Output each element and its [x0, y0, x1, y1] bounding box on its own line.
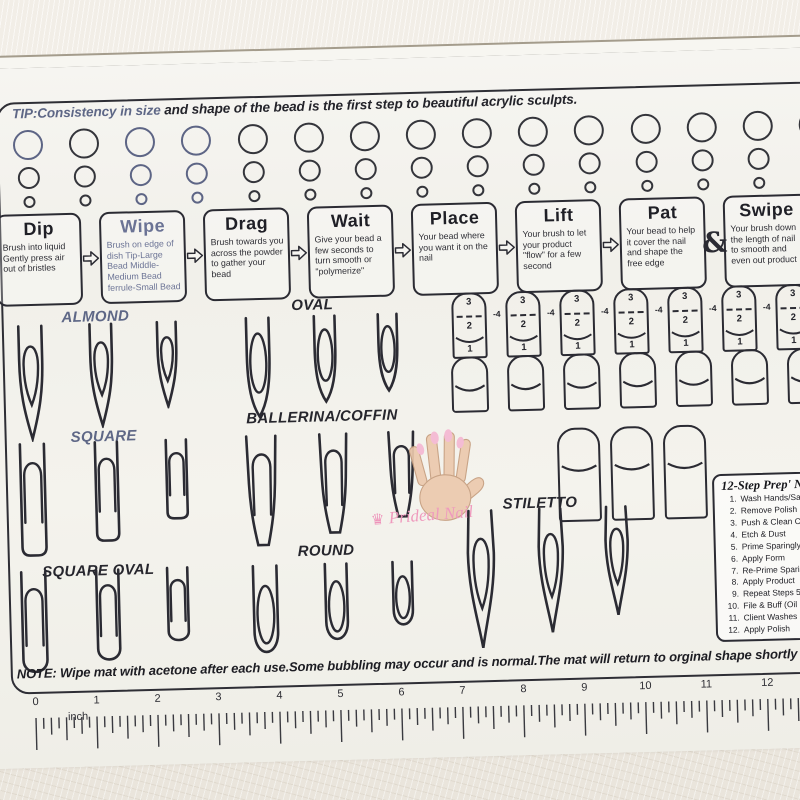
prep-item-number: 8.	[724, 577, 739, 589]
guide-smile-line	[565, 380, 598, 399]
arrow-right-icon	[497, 201, 517, 293]
brand-logo: ♛ Prideal Nail	[394, 419, 517, 527]
stiletto-nail-outline	[593, 504, 642, 617]
step-title: Dip	[2, 218, 76, 241]
arrow-right-icon	[186, 244, 205, 266]
guide-marker-4: -4	[655, 304, 663, 314]
prep-item-number: 3.	[722, 517, 737, 529]
plain-nail-guides-row	[451, 347, 800, 413]
small-bead-circle	[416, 186, 428, 198]
arrow-right-icon	[82, 247, 101, 269]
shape-group-stiletto	[453, 504, 643, 651]
almond-nail-outline	[78, 322, 126, 429]
plain-nail-guide	[507, 355, 545, 412]
coffin-nail-outline	[235, 433, 290, 558]
small-bead-circle	[79, 194, 91, 206]
ruler-number: 9	[581, 682, 587, 694]
guide-zone-2: 2	[616, 316, 647, 328]
bead-column	[574, 115, 606, 194]
guide-zone-1: 1	[670, 337, 701, 349]
guide-smile-line	[666, 460, 705, 479]
prep-item-number: 9.	[724, 589, 739, 601]
plain-nail-guide	[563, 353, 601, 410]
guide-zone-1: 1	[454, 343, 485, 355]
medium-bead-circle	[747, 148, 770, 171]
ruler-number: 8	[520, 683, 526, 695]
small-bead-circle	[585, 181, 597, 193]
guide-marker-4: -4	[547, 307, 555, 317]
prep-item-text: Client Washes Hands	[743, 611, 800, 625]
step-title: Wipe	[106, 215, 180, 238]
prep-item-number: 11.	[725, 613, 740, 625]
numbered-nail-guide: 3-421	[505, 291, 542, 358]
shape-group-almond	[6, 320, 189, 443]
numbered-nail-guide: 3-421	[613, 288, 650, 355]
small-bead-circle	[360, 187, 372, 199]
almond-nail-outline	[6, 323, 57, 442]
guide-dashed-line	[511, 314, 536, 317]
guide-zone-3: 3	[723, 289, 754, 301]
large-bead-circle	[293, 122, 324, 153]
guide-smile-line	[509, 382, 542, 401]
medium-bead-circle	[18, 167, 41, 190]
ruler-number: 2	[154, 693, 160, 705]
stiletto-nail-outline	[525, 506, 578, 635]
photo-of-nail-practice-mat: TIP:Consistency in size and shape of the…	[0, 0, 800, 800]
step-description: Your bead to help it cover the nail and …	[626, 224, 700, 269]
guide-smile-line	[733, 376, 766, 395]
step-title: Lift	[522, 204, 596, 227]
medium-bead-circle	[579, 152, 602, 175]
ruler-number: 12	[761, 677, 774, 689]
guide-smile-line	[560, 463, 599, 482]
small-bead-circle	[136, 193, 148, 205]
prep-item-number: 1.	[721, 494, 736, 506]
arrow-right-icon	[289, 207, 309, 299]
square-nail-outline	[7, 441, 60, 564]
medium-bead-circle	[130, 164, 153, 187]
small-bead-circle	[528, 183, 540, 195]
guide-dashed-line	[619, 311, 644, 314]
small-bead-circle	[248, 190, 260, 202]
large-bead-circle	[125, 127, 156, 158]
round-nail-outline	[240, 563, 292, 674]
step-title: Swipe	[730, 199, 800, 222]
step-box: DipBrush into liquid Gently press air ou…	[0, 213, 83, 307]
step-description: Your brush down the length of nail to sm…	[730, 222, 800, 267]
arrow-right-icon	[393, 204, 413, 296]
arrow-right-icon	[394, 239, 413, 261]
ruler-number: 11	[700, 678, 712, 690]
stiletto-nail-outline	[453, 508, 511, 651]
guide-dashed-line	[673, 310, 698, 313]
round-nail-outline	[313, 562, 360, 659]
guide-zone-2: 2	[454, 320, 485, 332]
guide-marker-4: -4	[493, 309, 501, 319]
guide-marker-4: -4	[601, 306, 609, 316]
prep-item-text: Push & Clean Cuticles	[741, 515, 800, 529]
bead-column	[630, 113, 662, 192]
medium-bead-circle	[523, 153, 546, 176]
step-box: WaitGive your bead a few seconds to turn…	[307, 204, 395, 298]
step-box: DragBrush towards you across the powder …	[203, 207, 291, 301]
guide-dashed-line	[457, 315, 482, 318]
ruler-number: 1	[93, 694, 99, 706]
ruler-number: 4	[276, 690, 282, 702]
medium-bead-circle	[186, 162, 209, 185]
square-nail-outline	[155, 438, 199, 525]
plain-nail-guide	[675, 350, 713, 407]
medium-bead-circle	[354, 158, 377, 181]
bead-column	[69, 128, 101, 207]
large-bead-circle	[518, 116, 549, 147]
guide-marker-4: -4	[709, 303, 717, 313]
arrow-right-icon	[290, 242, 309, 264]
arrow-right-icon	[601, 199, 621, 291]
ruler-number: 3	[215, 691, 221, 703]
prep-item-number: 4.	[722, 529, 737, 541]
large-bead-circle	[181, 125, 212, 156]
guide-zone-3: 3	[507, 295, 538, 307]
small-bead-circle	[23, 196, 35, 208]
guide-marker-4: -4	[763, 302, 771, 312]
guide-zone-2: 2	[670, 314, 701, 326]
prep-item-number: 7.	[723, 565, 738, 577]
arrow-right-icon	[498, 236, 517, 258]
bead-column	[462, 118, 494, 197]
coffin-nail-outline	[309, 432, 360, 545]
guide-zone-3: 3	[615, 292, 646, 304]
step-description: Brush towards you across the powder to g…	[210, 235, 284, 280]
step-box: PatYour bead to help it cover the nail a…	[619, 196, 707, 290]
small-bead-circle	[472, 184, 484, 196]
guide-zone-3: 3	[669, 290, 700, 302]
guide-zone-2: 2	[508, 319, 539, 331]
step-title: Pat	[626, 201, 700, 224]
numbered-nail-guide: 3-421	[721, 285, 758, 352]
prep-item-number: 5.	[723, 541, 738, 553]
guide-dashed-line	[727, 308, 752, 311]
ruler-number: 5	[337, 688, 343, 700]
guide-smile-line	[453, 383, 486, 402]
ampersand: &	[705, 196, 725, 288]
guide-zone-1: 1	[616, 339, 647, 351]
numbered-nail-guide: 3-421	[559, 289, 596, 356]
step-description: Give your bead a few seconds to turn smo…	[314, 233, 388, 278]
small-bead-circle	[641, 180, 653, 192]
prep-item-number: 6.	[723, 553, 738, 565]
shape-group-square	[7, 438, 200, 565]
guide-smile-line	[677, 377, 710, 396]
small-bead-circle	[697, 178, 709, 190]
prep-list-title: 12-Step Prep' N	[721, 474, 800, 494]
guide-dashed-line	[781, 307, 800, 310]
ruler-number: 10	[639, 680, 652, 692]
bead-column	[237, 124, 269, 203]
medium-bead-circle	[298, 159, 321, 182]
medium-bead-circle	[691, 149, 714, 172]
large-bead-circle	[237, 124, 268, 155]
numbered-nail-guide: 3-421	[451, 292, 488, 359]
guide-zone-3: 3	[561, 293, 592, 305]
prep-list-items: 1.Wash Hands/Sanitize2.Remove Polish3.Pu…	[721, 489, 800, 637]
step-description: Your bead where you want it on the nail	[418, 230, 492, 264]
medium-bead-circle	[635, 151, 658, 174]
guide-zone-1: 1	[724, 336, 755, 348]
oval-nail-outline	[368, 312, 409, 395]
guide-dashed-line	[565, 312, 590, 315]
practice-mat: TIP:Consistency in size and shape of the…	[0, 44, 800, 769]
large-bead-circle	[349, 121, 380, 152]
bead-column	[349, 121, 381, 200]
prep-item-text: Prime Sparingly &	[742, 539, 800, 553]
large-bead-circle	[405, 119, 436, 150]
step-title: Wait	[314, 210, 388, 233]
large-bead-circle	[462, 118, 493, 149]
ruler-number: 0	[32, 696, 38, 708]
arrow-right-icon	[602, 234, 621, 256]
shape-label-round: ROUND	[298, 542, 355, 560]
numbered-nail-guide: 3-421	[775, 284, 800, 351]
numbered-nail-guide: 3-421	[667, 286, 704, 353]
prep-item-number: 10.	[724, 601, 739, 613]
step-description: Your brush to let your product "flow" fo…	[522, 227, 596, 272]
shape-label-oval: OVAL	[291, 296, 333, 314]
plain-nail-guide	[451, 356, 489, 413]
guide-smile-line	[621, 379, 654, 398]
step-box: PlaceYour bead where you want it on the …	[411, 202, 499, 296]
step-title: Place	[418, 207, 492, 230]
large-bead-circle	[13, 130, 44, 161]
bead-column	[742, 111, 774, 190]
guide-smile-line	[613, 462, 652, 481]
step-title: Drag	[210, 212, 284, 235]
plain-nail-guide	[731, 349, 769, 406]
large-bead-circle	[742, 111, 773, 142]
bead-column	[518, 116, 550, 195]
round-nail-outline	[382, 560, 424, 641]
step-description: Brush on edge of dish Tip-Large Bead Mid…	[107, 238, 181, 293]
squoval-nail-outline	[156, 566, 200, 651]
large-bead-circle	[686, 112, 717, 143]
guide-zone-3: 3	[777, 288, 800, 300]
prep-item-number: 2.	[722, 506, 737, 518]
almond-nail-outline	[147, 320, 188, 409]
small-bead-circle	[753, 177, 765, 189]
large-bead-circle	[630, 113, 661, 144]
bead-column	[405, 119, 437, 198]
ruler-number: 6	[398, 686, 404, 698]
small-bead-circle	[304, 188, 316, 200]
ruler-number: 7	[459, 685, 465, 697]
guide-zone-3: 3	[453, 296, 484, 308]
step-box: WipeBrush on edge of dish Tip-Large Bead…	[99, 210, 187, 304]
prep-steps-list: 12-Step Prep' N 1.Wash Hands/Sanitize2.R…	[712, 469, 800, 642]
medium-bead-circle	[410, 156, 433, 179]
plain-nail-guide	[787, 347, 800, 404]
medium-bead-circle	[467, 155, 490, 178]
step-description: Brush into liquid Gently press air out o…	[3, 241, 77, 275]
arrow-right-icon	[81, 212, 101, 304]
square-nail-outline	[83, 439, 132, 548]
bead-column	[293, 122, 325, 201]
bead-column	[686, 112, 718, 191]
medium-bead-circle	[242, 161, 265, 184]
large-bead-circle	[69, 128, 100, 159]
medium-bead-circle	[74, 165, 97, 188]
arrow-right-icon	[185, 209, 205, 301]
bead-column	[13, 130, 45, 209]
guide-zone-2: 2	[724, 313, 755, 325]
guide-zone-1: 1	[508, 342, 539, 354]
oval-nail-outline	[303, 314, 348, 407]
oval-nail-outline	[234, 315, 284, 422]
small-bead-circle	[192, 191, 204, 203]
guide-zone-1: 1	[562, 340, 593, 352]
bead-column	[181, 125, 213, 204]
squoval-nail-outline	[84, 567, 133, 672]
crown-icon: ♛	[370, 511, 385, 529]
prep-item-text: Apply Polish	[744, 623, 790, 636]
step-box: SwipeYour brush down the length of nail …	[723, 194, 800, 288]
guide-smile-line	[789, 374, 800, 393]
guide-zone-2: 2	[562, 317, 593, 329]
numbered-nail-guides-row: 3-4213-4213-4213-4213-4213-4213-421	[451, 284, 800, 359]
bead-column	[125, 127, 157, 206]
guide-zone-1: 1	[778, 335, 800, 347]
plain-nail-guide	[663, 424, 708, 519]
large-bead-circle	[574, 115, 605, 146]
step-box: LiftYour brush to let your product "flow…	[515, 199, 603, 293]
guide-zone-2: 2	[778, 312, 800, 324]
plain-nail-guide	[619, 352, 657, 409]
prep-item-number: 12.	[725, 625, 740, 637]
